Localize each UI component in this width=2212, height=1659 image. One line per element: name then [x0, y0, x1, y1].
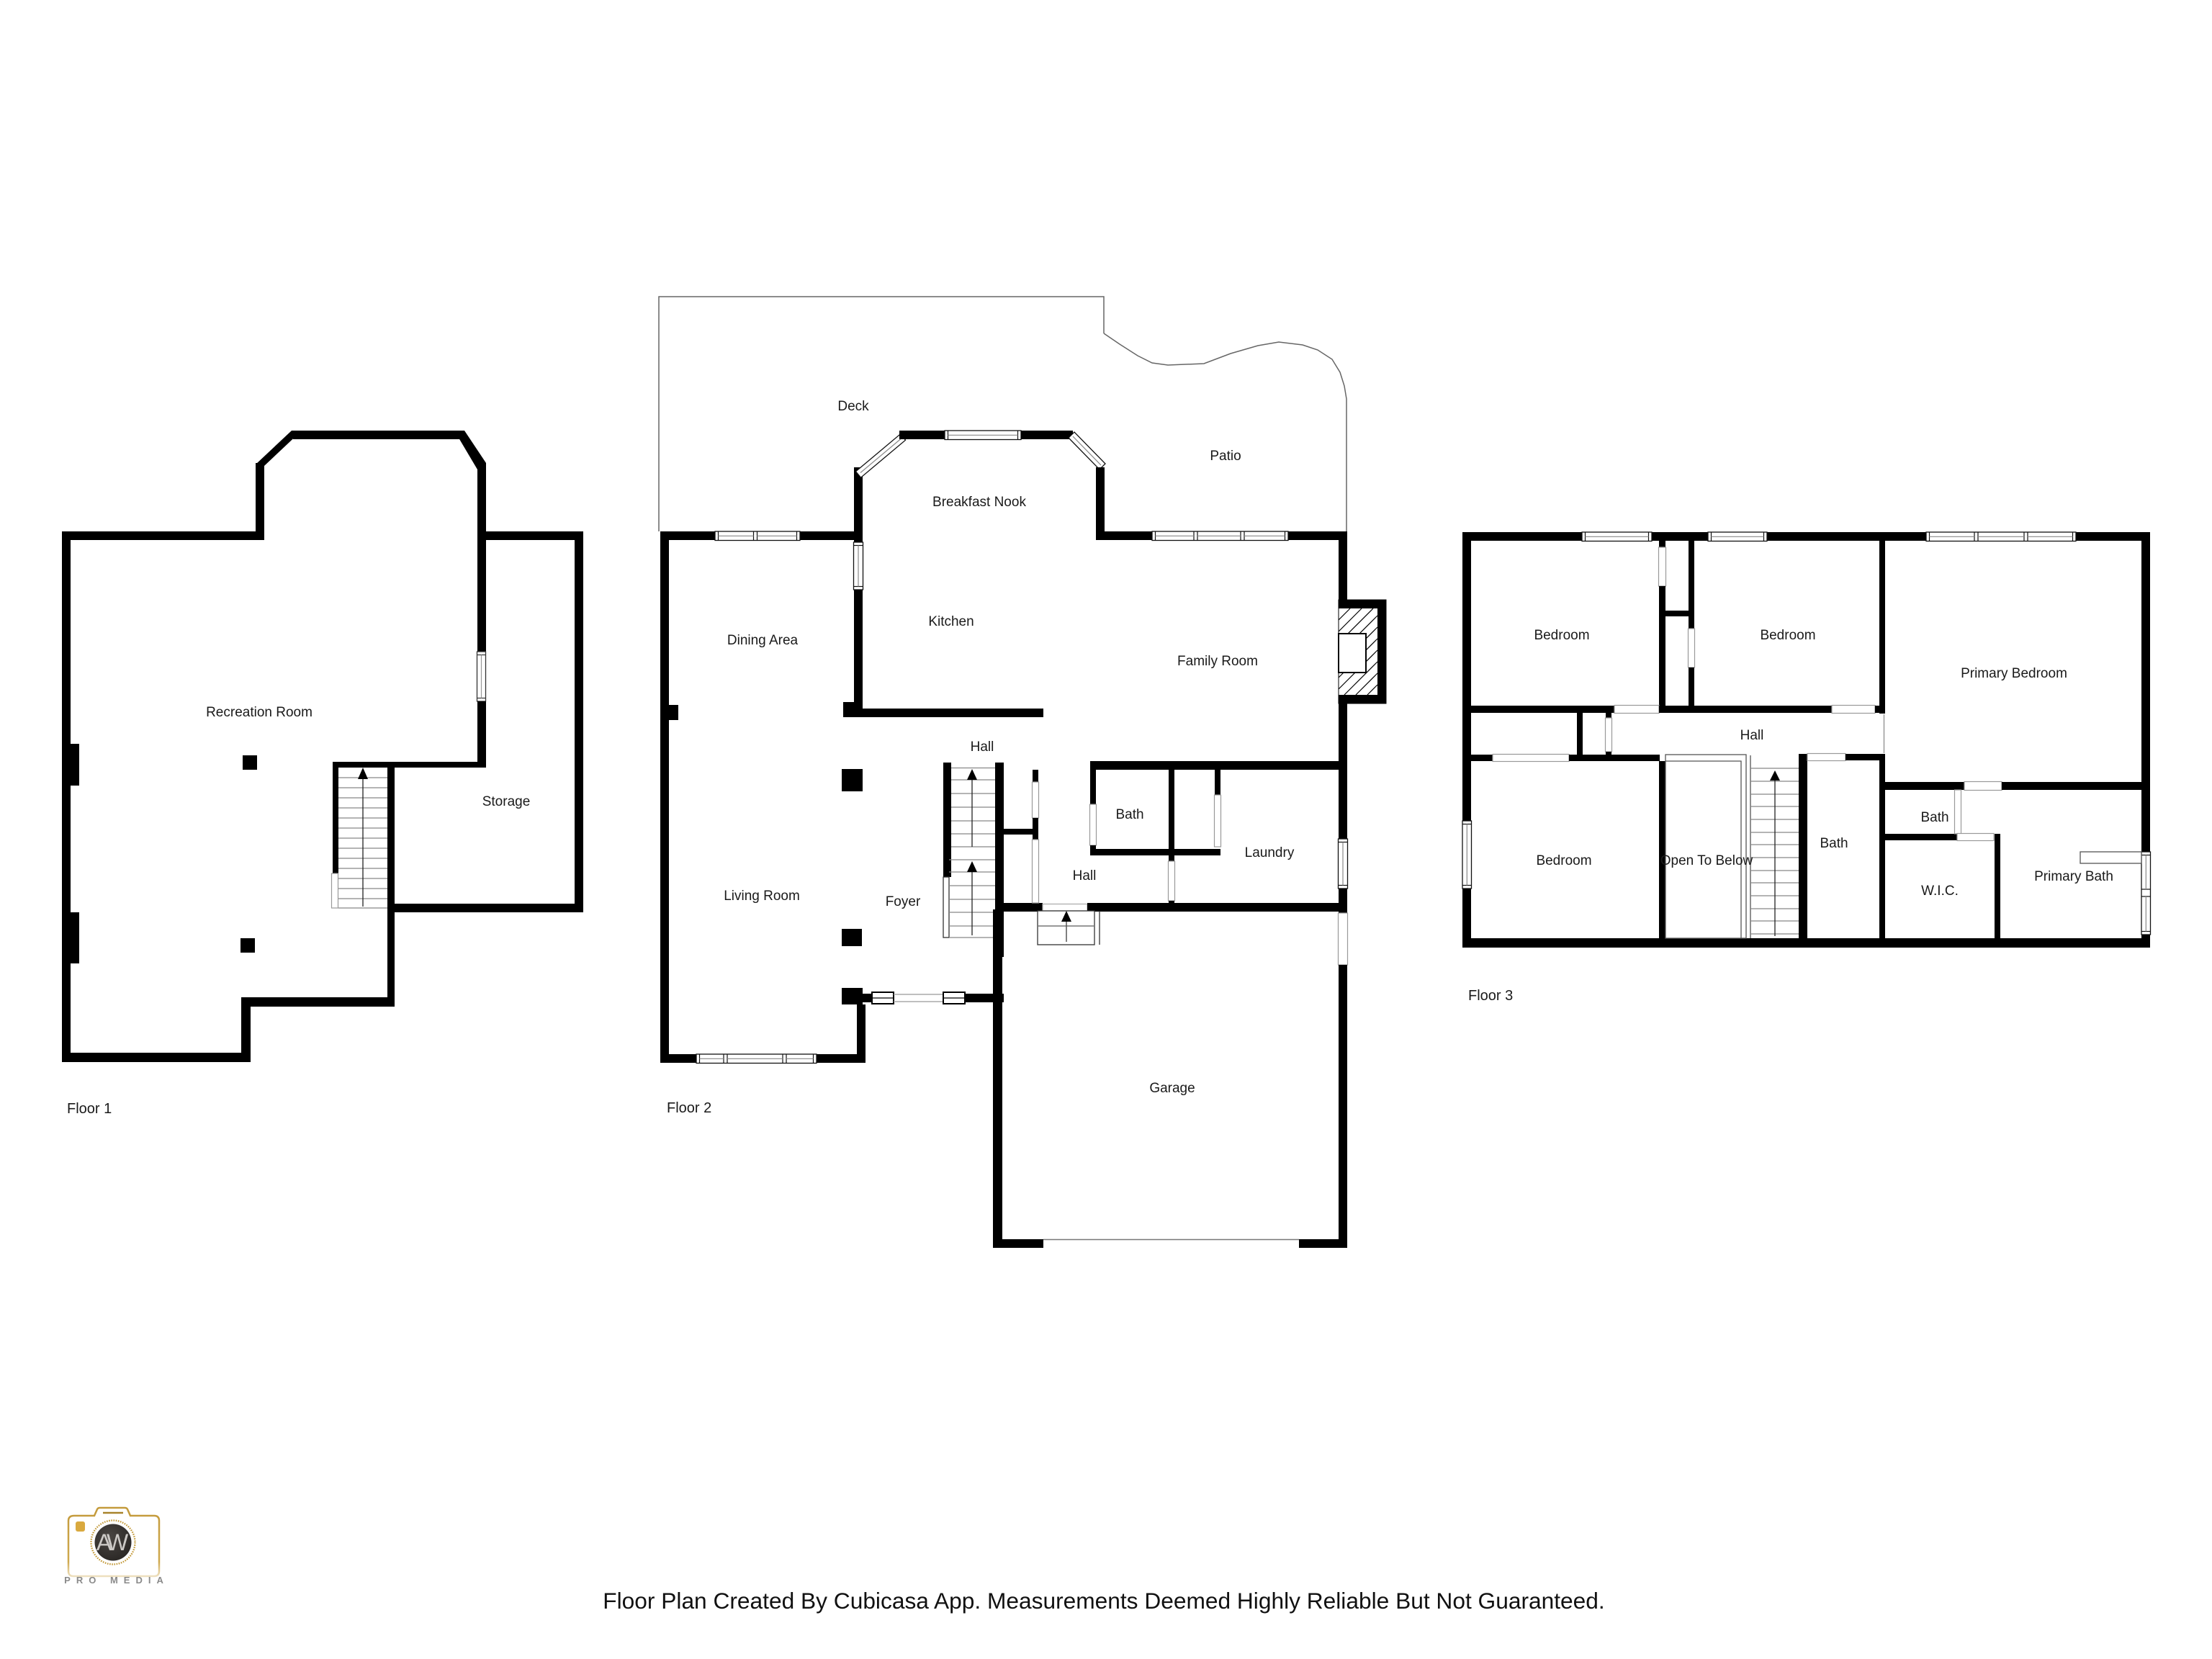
svg-text:Garage: Garage: [1149, 1081, 1195, 1096]
svg-text:W.I.C.: W.I.C.: [1921, 884, 1959, 899]
svg-text:Bedroom: Bedroom: [1534, 628, 1589, 643]
svg-text:Foyer: Foyer: [886, 894, 921, 909]
svg-text:Bath: Bath: [1115, 807, 1143, 822]
svg-text:Primary Bedroom: Primary Bedroom: [1961, 666, 2067, 681]
svg-text:Breakfast Nook: Breakfast Nook: [932, 495, 1026, 510]
svg-text:Family Room: Family Room: [1177, 654, 1258, 669]
svg-text:Open To Below: Open To Below: [1660, 853, 1753, 868]
svg-text:Hall: Hall: [971, 739, 994, 755]
svg-text:Hall: Hall: [1740, 728, 1764, 743]
svg-text:Bedroom: Bedroom: [1760, 628, 1815, 643]
svg-text:Kitchen: Kitchen: [928, 614, 974, 629]
svg-text:Storage: Storage: [482, 794, 531, 809]
svg-text:Dining Area: Dining Area: [727, 633, 799, 648]
svg-text:Primary Bath: Primary Bath: [2034, 869, 2113, 884]
svg-text:Deck: Deck: [837, 399, 869, 414]
svg-text:Hall: Hall: [1073, 868, 1097, 884]
svg-text:Bath: Bath: [1920, 810, 1948, 825]
svg-text:PRO MEDIA: PRO MEDIA: [64, 1575, 169, 1586]
svg-text:Laundry: Laundry: [1245, 845, 1295, 860]
svg-text:Bath: Bath: [1820, 836, 1848, 851]
svg-text:Floor 1: Floor 1: [67, 1101, 112, 1117]
svg-text:Recreation Room: Recreation Room: [206, 705, 313, 720]
svg-text:Patio: Patio: [1210, 449, 1241, 464]
svg-text:Living Room: Living Room: [724, 889, 800, 904]
svg-text:Bedroom: Bedroom: [1536, 853, 1591, 868]
svg-text:Floor 2: Floor 2: [667, 1100, 711, 1116]
svg-text:AW: AW: [96, 1529, 129, 1555]
svg-text:Floor 3: Floor 3: [1468, 988, 1513, 1004]
svg-text:Floor Plan Created By Cubicasa: Floor Plan Created By Cubicasa App. Meas…: [603, 1588, 1604, 1614]
